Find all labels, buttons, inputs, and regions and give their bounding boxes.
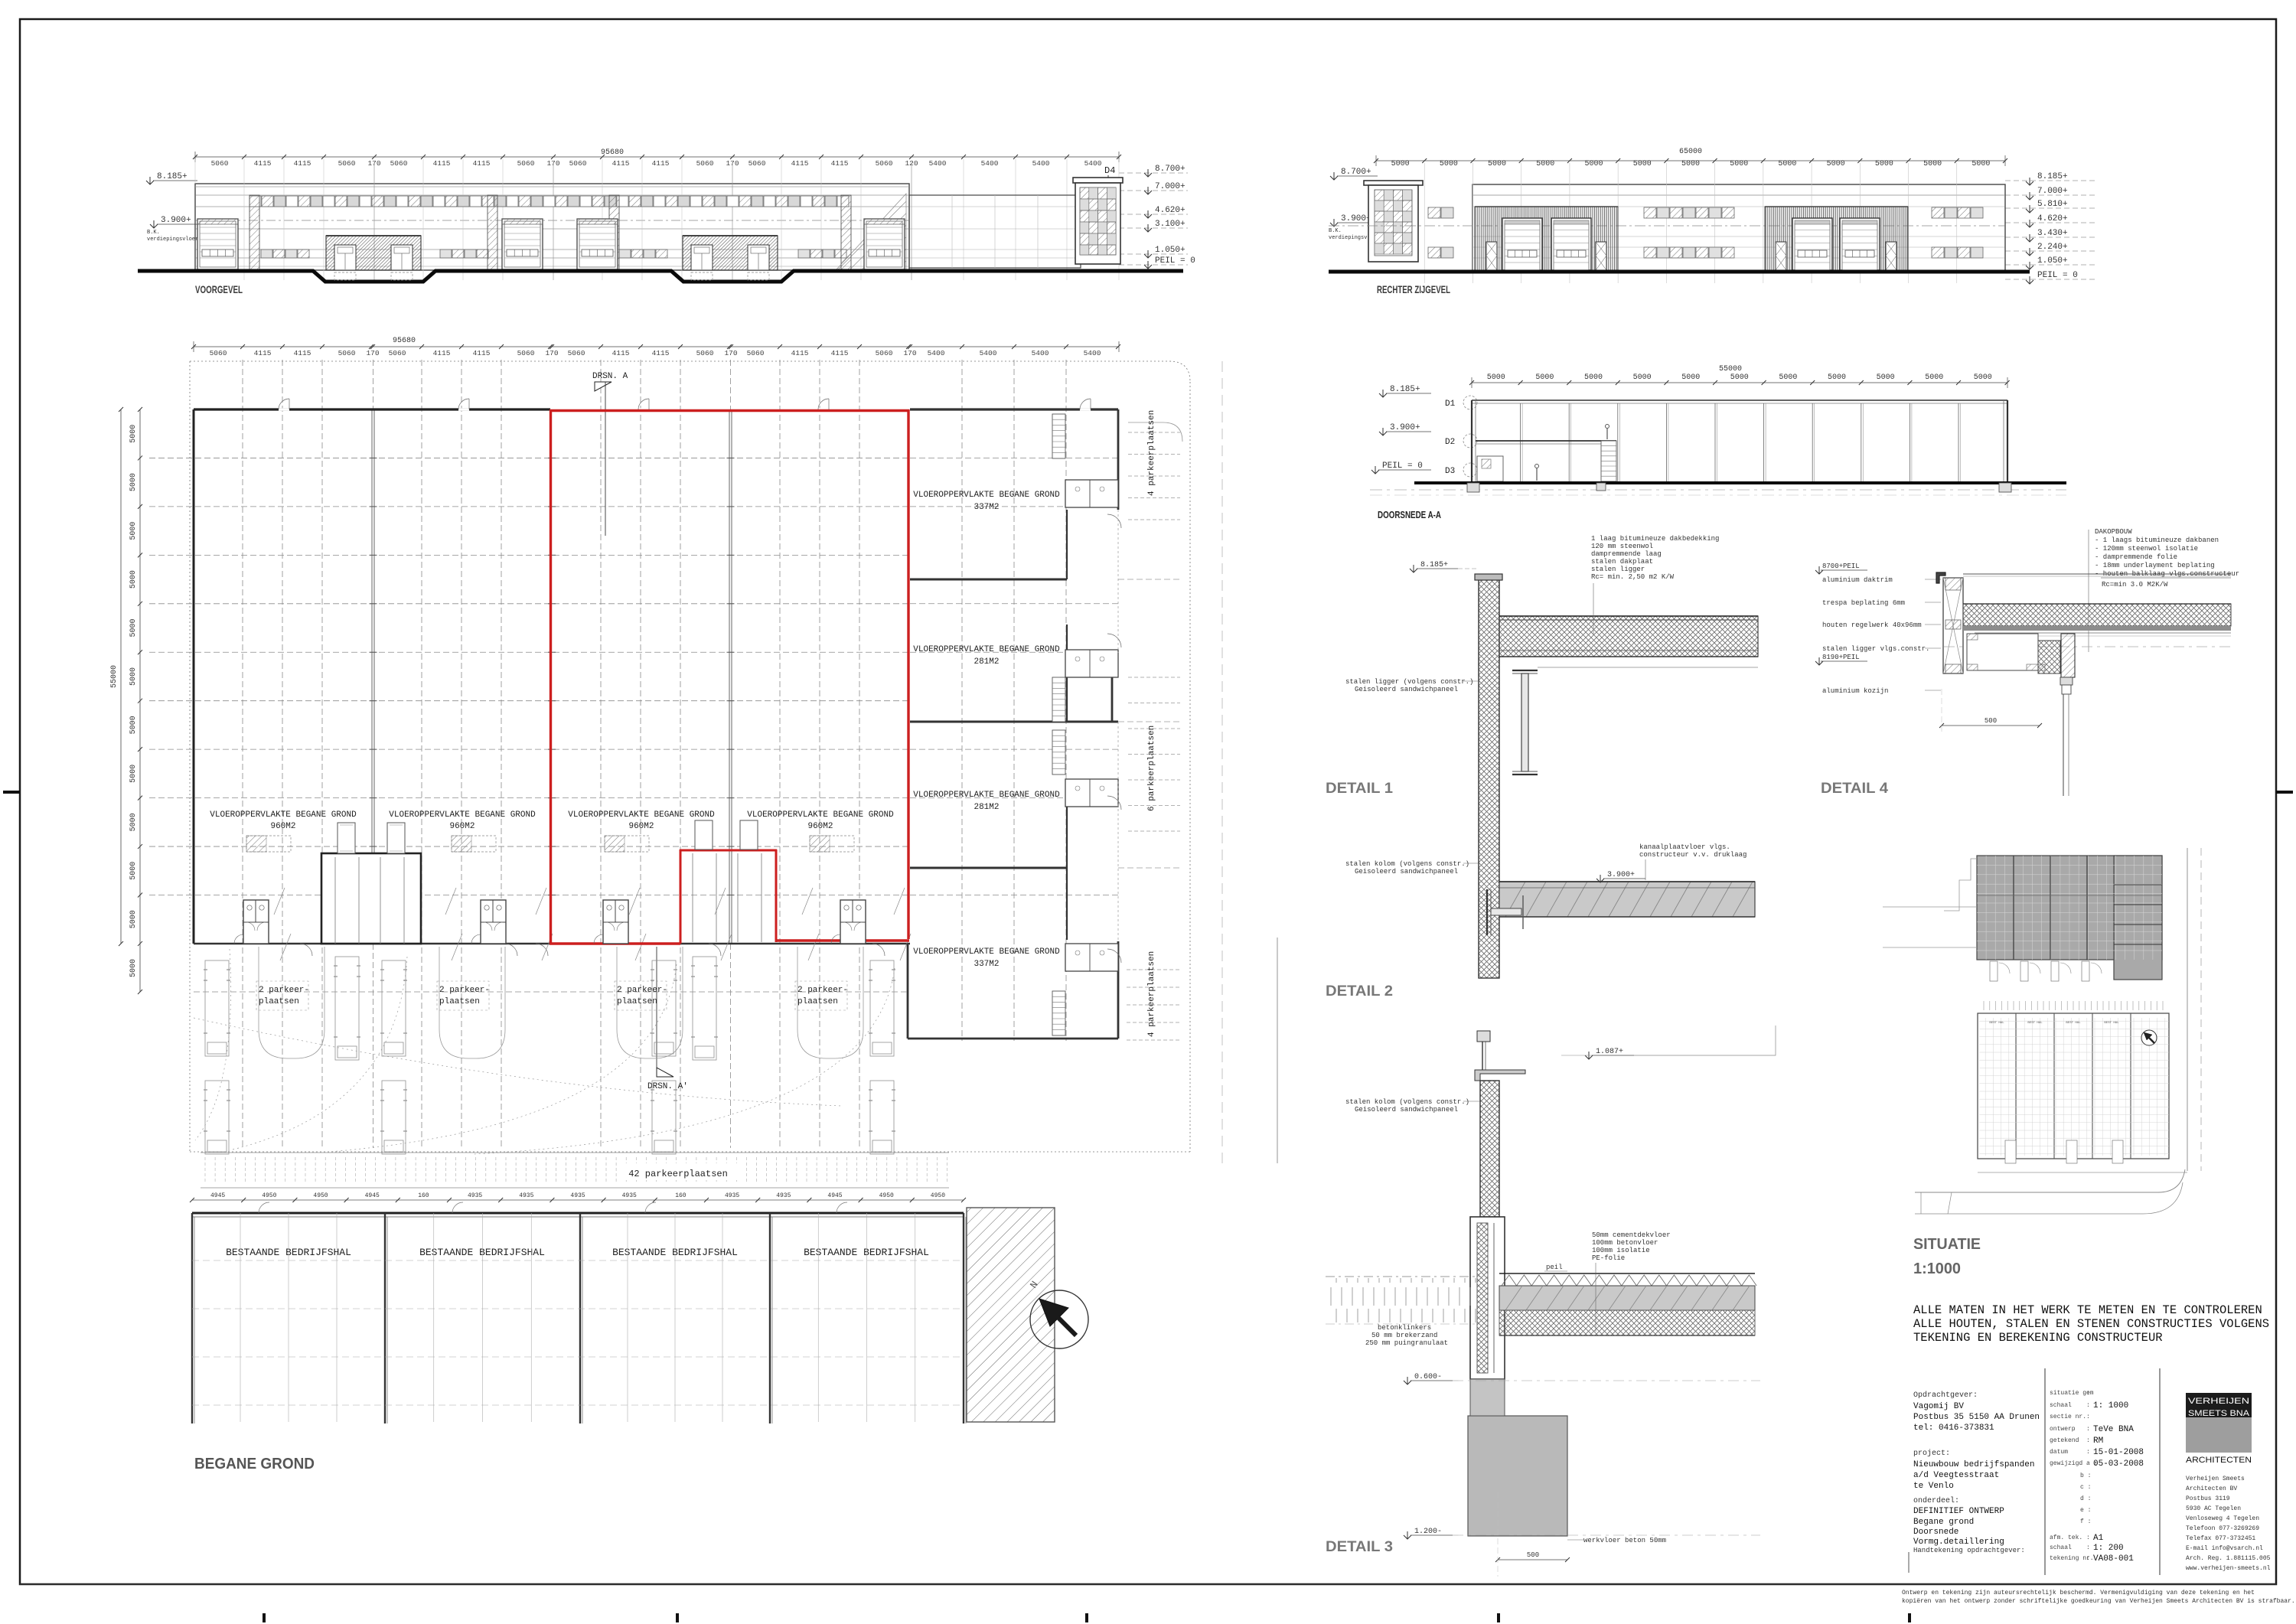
svg-text:SITUATIE: SITUATIE (1913, 1236, 1981, 1253)
svg-text:5000: 5000 (129, 910, 138, 928)
svg-text:DEFINITIEF ONTWERP: DEFINITIEF ONTWERP (1913, 1507, 2004, 1516)
svg-text:5400: 5400 (980, 349, 997, 357)
svg-text:5060: 5060 (748, 159, 766, 168)
svg-text:5000: 5000 (129, 618, 138, 637)
svg-text:c :: c : (2080, 1484, 2091, 1491)
svg-text::: : (2086, 1555, 2090, 1562)
svg-text:170: 170 (545, 349, 558, 357)
svg-text:5000: 5000 (1440, 160, 1458, 168)
svg-text:4 parkeerplaatsen: 4 parkeerplaatsen (1147, 951, 1156, 1037)
svg-text:5000: 5000 (129, 813, 138, 831)
svg-text:8700+PEIL: 8700+PEIL (1822, 563, 1860, 570)
svg-text::: : (2086, 1426, 2090, 1433)
svg-text:1.087+: 1.087+ (1596, 1048, 1623, 1056)
svg-text:5000: 5000 (1971, 160, 1990, 168)
svg-text:afm. tek.: afm. tek. (2050, 1534, 2082, 1541)
svg-text:BEGANE GROND: BEGANE GROND (194, 1456, 315, 1472)
svg-text:onderdeel:: onderdeel: (1913, 1496, 1959, 1505)
svg-text:VLOEROPPERVLAKTE BEGANE GROND: VLOEROPPERVLAKTE BEGANE GROND (389, 810, 536, 820)
svg-text:5000: 5000 (1730, 373, 1749, 382)
svg-text:- 1 laags bitumineuze dakbanen: - 1 laags bitumineuze dakbanen (2095, 536, 2219, 544)
svg-text:281M2: 281M2 (974, 803, 999, 812)
svg-text:5060: 5060 (338, 349, 356, 357)
svg-text:5000: 5000 (1585, 160, 1603, 168)
svg-text:peil: peil (1546, 1264, 1563, 1271)
svg-text:5060: 5060 (747, 349, 765, 357)
svg-text:100mm betonvloer: 100mm betonvloer (1592, 1239, 1658, 1247)
svg-text:DETAIL 2: DETAIL 2 (1326, 983, 1393, 1000)
svg-text:PEIL = 0: PEIL = 0 (2037, 271, 2078, 280)
svg-text:DETAIL 1: DETAIL 1 (1326, 781, 1393, 797)
svg-text:Venloseweg 4 Tegelen: Venloseweg 4 Tegelen (2186, 1515, 2259, 1522)
svg-text:1 laag bitumineuze dakbedekkin: 1 laag bitumineuze dakbedekking (1591, 535, 1719, 543)
svg-text:Geisoleerd sandwichpaneel: Geisoleerd sandwichpaneel (1355, 868, 1458, 876)
svg-text:5400: 5400 (1084, 349, 1101, 357)
svg-text:PEIL = 0: PEIL = 0 (1382, 461, 1423, 471)
svg-text:4115: 4115 (294, 159, 311, 168)
svg-text:stalen dakplaat: stalen dakplaat (1591, 558, 1653, 566)
svg-text:8.185+: 8.185+ (157, 172, 188, 181)
svg-text:Geisoleerd sandwichpaneel: Geisoleerd sandwichpaneel (1355, 686, 1458, 693)
svg-text:ontwerp: ontwerp (2050, 1426, 2076, 1433)
svg-text:5400: 5400 (1032, 349, 1049, 357)
svg-text:5060: 5060 (338, 159, 356, 168)
svg-text:datum: datum (2050, 1449, 2068, 1456)
svg-text:5000: 5000 (129, 862, 138, 880)
svg-text:6 parkeerplaatsen: 6 parkeerplaatsen (1147, 726, 1156, 811)
svg-text:8190+PEIL: 8190+PEIL (1822, 654, 1860, 661)
svg-text:- 18mm underlayment beplating: - 18mm underlayment beplating (2095, 562, 2215, 569)
svg-text:plaatsen: plaatsen (617, 997, 657, 1006)
svg-text:DOORSNEDE A-A: DOORSNEDE A-A (1378, 509, 1441, 520)
svg-text:120 mm steenwol: 120 mm steenwol (1591, 543, 1653, 550)
svg-text:Geisoleerd sandwichpaneel: Geisoleerd sandwichpaneel (1355, 1106, 1458, 1114)
svg-text:960M2: 960M2 (628, 822, 654, 831)
svg-text:sectie nr.: sectie nr. (2050, 1414, 2086, 1420)
svg-text:ALLE HOUTEN, STALEN EN STENEN: ALLE HOUTEN, STALEN EN STENEN CONSTRUCTI… (1913, 1317, 2269, 1331)
svg-text:4945: 4945 (827, 1192, 842, 1199)
svg-text:5930 AC Tegelen: 5930 AC Tegelen (2186, 1505, 2241, 1512)
svg-text:4115: 4115 (831, 159, 849, 168)
svg-text:a/d Veegtesstraat: a/d Veegtesstraat (1913, 1471, 1999, 1480)
svg-text:160: 160 (418, 1192, 429, 1199)
svg-text:50mm cementdekvloer: 50mm cementdekvloer (1592, 1231, 1671, 1239)
svg-text:Architecten BV: Architecten BV (2186, 1485, 2237, 1492)
svg-text:getekend: getekend (2050, 1437, 2079, 1444)
svg-text:DAKOPBOUW: DAKOPBOUW (2095, 528, 2132, 536)
svg-text:5.810+: 5.810+ (2037, 200, 2068, 209)
svg-text:4115: 4115 (652, 349, 670, 357)
svg-text:5000: 5000 (1778, 160, 1796, 168)
svg-text:2 parkeer-: 2 parkeer- (259, 986, 309, 995)
svg-text:4115: 4115 (612, 159, 630, 168)
svg-text:3.900+: 3.900+ (1607, 871, 1635, 879)
svg-text:4115: 4115 (473, 349, 491, 357)
svg-text:4.620+: 4.620+ (1155, 206, 1186, 215)
svg-text:A1: A1 (2093, 1534, 2104, 1543)
svg-text:5060: 5060 (876, 159, 893, 168)
svg-text:4950: 4950 (879, 1192, 894, 1199)
svg-text:5000: 5000 (1536, 160, 1554, 168)
svg-text:4.620+: 4.620+ (2037, 214, 2068, 223)
svg-text:- 120mm steenwol isolatie: - 120mm steenwol isolatie (2095, 545, 2198, 553)
svg-text:Verheijen Smeets: Verheijen Smeets (2186, 1476, 2245, 1482)
svg-text:4115: 4115 (294, 349, 311, 357)
svg-text:Telefoon 077-3269269: Telefoon 077-3269269 (2186, 1525, 2259, 1532)
svg-text:schaal: schaal (2050, 1544, 2072, 1551)
svg-text:VA08-001: VA08-001 (2093, 1554, 2134, 1564)
svg-text:B.K.: B.K. (147, 230, 160, 236)
svg-text:5000: 5000 (1391, 160, 1410, 168)
svg-text:ALLE MATEN IN HET WERK TE METE: ALLE MATEN IN HET WERK TE METEN EN TE CO… (1913, 1303, 2262, 1317)
svg-text:8.700+: 8.700+ (1341, 168, 1371, 177)
svg-text:D1: D1 (1445, 399, 1456, 409)
svg-text:100mm isolatie: 100mm isolatie (1592, 1247, 1650, 1254)
svg-text:BEST HAL: BEST HAL (1989, 1022, 2004, 1025)
svg-text:95680: 95680 (601, 148, 624, 157)
svg-text:TeVe BNA: TeVe BNA (2093, 1425, 2134, 1434)
svg-text:4950: 4950 (262, 1192, 276, 1199)
svg-text:VLOEROPPERVLAKTE BEGANE GROND: VLOEROPPERVLAKTE BEGANE GROND (568, 810, 715, 820)
svg-text:DETAIL 3: DETAIL 3 (1326, 1539, 1393, 1555)
svg-text:Handtekening opdrachtgever:: Handtekening opdrachtgever: (1913, 1547, 2025, 1554)
svg-text:170: 170 (724, 349, 737, 357)
svg-text:5060: 5060 (211, 159, 229, 168)
svg-text:D3: D3 (1445, 467, 1455, 476)
svg-text:verdiepingsvloer: verdiepingsvloer (147, 236, 198, 243)
svg-text:8.185+: 8.185+ (1390, 385, 1420, 394)
svg-text:05-03-2008: 05-03-2008 (2093, 1459, 2144, 1469)
svg-text:5000: 5000 (1877, 373, 1895, 382)
svg-text:tel: 0416-373831: tel: 0416-373831 (1913, 1423, 1994, 1433)
svg-text:VLOEROPPERVLAKTE BEGANE GROND: VLOEROPPERVLAKTE BEGANE GROND (913, 491, 1060, 500)
svg-text:2 parkeer-: 2 parkeer- (439, 986, 490, 995)
svg-text:170: 170 (366, 349, 379, 357)
svg-text:VLOEROPPERVLAKTE BEGANE GROND: VLOEROPPERVLAKTE BEGANE GROND (913, 947, 1060, 957)
svg-text:Telefax 077-3732451: Telefax 077-3732451 (2186, 1535, 2255, 1542)
svg-text:BESTAANDE BEDRIJFSHAL: BESTAANDE BEDRIJFSHAL (804, 1247, 929, 1258)
svg-text:5060: 5060 (569, 159, 587, 168)
svg-text:4115: 4115 (652, 159, 670, 168)
svg-text:4115: 4115 (433, 349, 451, 357)
svg-text:5060: 5060 (876, 349, 893, 357)
svg-text:4945: 4945 (210, 1192, 225, 1199)
svg-text:5000: 5000 (129, 716, 138, 734)
svg-text::: : (2086, 1449, 2090, 1456)
svg-text:5060: 5060 (390, 159, 408, 168)
svg-text:1: 200: 1: 200 (2093, 1544, 2124, 1553)
svg-text:aluminium kozijn: aluminium kozijn (1822, 687, 1888, 695)
svg-text:7.000+: 7.000+ (2037, 187, 2068, 196)
svg-text:5000: 5000 (129, 425, 138, 443)
svg-text:4935: 4935 (519, 1192, 533, 1199)
svg-text:www.verheijen-smeets.nl: www.verheijen-smeets.nl (2186, 1565, 2271, 1572)
svg-text:5400: 5400 (928, 349, 945, 357)
svg-text:Rc=min 3.0 M2K/W: Rc=min 3.0 M2K/W (2102, 581, 2168, 589)
svg-text:Doorsnede: Doorsnede (1913, 1528, 1958, 1537)
svg-text:4935: 4935 (570, 1192, 585, 1199)
svg-text:BESTAANDE BEDRIJFSHAL: BESTAANDE BEDRIJFSHAL (419, 1247, 545, 1258)
svg-text:4115: 4115 (791, 349, 809, 357)
svg-text:stalen kolom (volgens constr.): stalen kolom (volgens constr.) (1345, 860, 1469, 868)
svg-text:- dampremmende folie: - dampremmende folie (2095, 553, 2177, 561)
svg-text:VOORGEVEL: VOORGEVEL (195, 283, 243, 295)
svg-text:5000: 5000 (1681, 373, 1700, 382)
svg-text:BEST HAL: BEST HAL (2066, 1022, 2081, 1025)
svg-text:5000: 5000 (1681, 160, 1700, 168)
svg-text:5060: 5060 (389, 349, 406, 357)
svg-text:1:1000: 1:1000 (1913, 1260, 1961, 1277)
svg-text:5000: 5000 (129, 473, 138, 491)
svg-text:1: 1000: 1: 1000 (2093, 1401, 2128, 1410)
svg-text:55000: 55000 (110, 665, 119, 688)
svg-text:160: 160 (675, 1192, 687, 1199)
svg-text:8.700+: 8.700+ (1155, 165, 1186, 174)
svg-text:5060: 5060 (568, 349, 585, 357)
svg-text:PE-folie: PE-folie (1592, 1254, 1625, 1262)
svg-text:PEIL = 0: PEIL = 0 (1155, 256, 1195, 266)
svg-text:5060: 5060 (696, 159, 714, 168)
svg-text:2 parkeer-: 2 parkeer- (617, 986, 667, 995)
svg-text:5000: 5000 (1633, 373, 1652, 382)
svg-text:15-01-2008: 15-01-2008 (2093, 1448, 2144, 1457)
svg-text:5000: 5000 (129, 667, 138, 686)
svg-text:betonklinkers: betonklinkers (1378, 1324, 1431, 1332)
svg-text:4115: 4115 (433, 159, 451, 168)
svg-text:2.240+: 2.240+ (2037, 243, 2068, 252)
svg-text:3.900+: 3.900+ (1390, 423, 1420, 432)
svg-text:50 mm brekerzand: 50 mm brekerzand (1371, 1332, 1437, 1339)
svg-text:4115: 4115 (254, 349, 272, 357)
svg-text:5400: 5400 (981, 159, 999, 168)
svg-text:170: 170 (903, 349, 916, 357)
svg-text:gewijzigd: gewijzigd (2050, 1460, 2082, 1467)
svg-text::: : (2086, 1437, 2090, 1444)
svg-text:5000: 5000 (1779, 373, 1797, 382)
svg-text::: : (2086, 1544, 2090, 1551)
svg-text:plaatsen: plaatsen (439, 997, 480, 1006)
svg-text:d :: d : (2080, 1495, 2091, 1502)
svg-text:4935: 4935 (622, 1192, 637, 1199)
svg-text:8.185+: 8.185+ (2037, 172, 2068, 181)
svg-text:3.100+: 3.100+ (1155, 220, 1186, 229)
svg-text:plaatsen: plaatsen (259, 997, 299, 1006)
svg-text:337M2: 337M2 (974, 503, 999, 512)
svg-text:DETAIL 4: DETAIL 4 (1821, 781, 1888, 797)
svg-text:aluminium daktrim: aluminium daktrim (1822, 576, 1893, 584)
svg-text:VLOEROPPERVLAKTE BEGANE GROND: VLOEROPPERVLAKTE BEGANE GROND (747, 810, 894, 820)
svg-text:4115: 4115 (473, 159, 491, 168)
svg-text:schaal: schaal (2050, 1402, 2072, 1409)
svg-text:5000: 5000 (1974, 373, 1992, 382)
svg-text:f :: f : (2080, 1518, 2091, 1525)
svg-text:D4: D4 (1104, 165, 1115, 176)
svg-text:5000: 5000 (1925, 373, 1943, 382)
svg-text:5000: 5000 (1828, 373, 1846, 382)
svg-text:VERHEIJEN: VERHEIJEN (2188, 1397, 2249, 1406)
svg-text:Rc= min. 2,50 m2 K/W: Rc= min. 2,50 m2 K/W (1591, 573, 1675, 581)
svg-text:project:: project: (1913, 1449, 1950, 1458)
svg-text:3.430+: 3.430+ (2037, 229, 2068, 238)
svg-text:5000: 5000 (1584, 373, 1603, 382)
svg-text:E-mail info@vsarch.nl: E-mail info@vsarch.nl (2186, 1545, 2263, 1552)
svg-text:4950: 4950 (313, 1192, 328, 1199)
svg-text:Postbus 3119: Postbus 3119 (2186, 1495, 2230, 1502)
svg-text:337M2: 337M2 (974, 960, 999, 969)
svg-text:4115: 4115 (612, 349, 630, 357)
svg-text:dampremmende laag: dampremmende laag (1591, 550, 1662, 558)
svg-text:55000: 55000 (1719, 365, 1742, 373)
svg-text:5000: 5000 (1875, 160, 1893, 168)
svg-text:stalen kolom (volgens constr.): stalen kolom (volgens constr.) (1345, 1098, 1469, 1106)
svg-text:4950: 4950 (931, 1192, 945, 1199)
svg-text:Begane grond: Begane grond (1913, 1518, 1974, 1527)
svg-text:5000: 5000 (129, 959, 138, 977)
svg-text:5000: 5000 (1487, 373, 1505, 382)
svg-text:4935: 4935 (776, 1192, 791, 1199)
svg-text:3.900+: 3.900+ (161, 216, 191, 225)
svg-text:4935: 4935 (468, 1192, 482, 1199)
svg-text::: : (2086, 1414, 2090, 1420)
svg-text:5060: 5060 (517, 349, 535, 357)
svg-text:kopiëren van het ontwerp zonde: kopiëren van het ontwerp zonder schrifte… (1902, 1598, 2295, 1605)
svg-text:281M2: 281M2 (974, 657, 999, 667)
svg-text:4935: 4935 (725, 1192, 739, 1199)
svg-text::: : (2086, 1390, 2090, 1397)
svg-text:5000: 5000 (129, 522, 138, 540)
svg-text:7.000+: 7.000+ (1155, 182, 1186, 191)
svg-text:5000: 5000 (1827, 160, 1845, 168)
svg-text:trespa beplating 6mm: trespa beplating 6mm (1822, 599, 1905, 607)
svg-text:BEST HAL: BEST HAL (2027, 1022, 2043, 1025)
svg-text:3.900+: 3.900+ (1341, 214, 1371, 223)
svg-text:95680: 95680 (393, 337, 416, 345)
svg-text:1.200-: 1.200- (1414, 1528, 1442, 1536)
svg-text:8.185+: 8.185+ (1420, 561, 1448, 569)
svg-text:B.K.: B.K. (1329, 228, 1342, 234)
svg-text:4 parkeerplaatsen: 4 parkeerplaatsen (1147, 410, 1156, 496)
svg-text:500: 500 (1985, 717, 1997, 725)
svg-text:42 parkeerplaatsen: 42 parkeerplaatsen (628, 1169, 728, 1179)
svg-text:RECHTER ZIJGEVEL: RECHTER ZIJGEVEL (1377, 283, 1450, 295)
svg-text:Nieuwbouw bedrijfspanden: Nieuwbouw bedrijfspanden (1913, 1460, 2034, 1469)
svg-text:2 parkeer-: 2 parkeer- (797, 986, 848, 995)
svg-text::: : (2086, 1402, 2090, 1409)
svg-text:5060: 5060 (517, 159, 535, 168)
svg-text:stalen ligger (volgens constr.: stalen ligger (volgens constr.) (1345, 678, 1473, 686)
svg-text:5400: 5400 (1032, 159, 1050, 168)
svg-text:Vormg.detaillering: Vormg.detaillering (1913, 1538, 2004, 1547)
svg-text:5000: 5000 (1535, 373, 1554, 382)
svg-text:5000: 5000 (1923, 160, 1942, 168)
svg-text:Opdrachtgever:: Opdrachtgever: (1913, 1391, 1978, 1400)
svg-text:e :: e : (2080, 1507, 2091, 1514)
svg-text:4115: 4115 (831, 349, 849, 357)
svg-text:960M2: 960M2 (270, 822, 295, 831)
svg-text:Ontwerp en tekening zijn auteu: Ontwerp en tekening zijn auteursrechteli… (1902, 1590, 2255, 1596)
svg-text:houten regelwerk 40x96mm: houten regelwerk 40x96mm (1822, 621, 1922, 629)
svg-text:65000: 65000 (1679, 148, 1702, 156)
svg-text:250 mm puingranulaat: 250 mm puingranulaat (1365, 1339, 1448, 1347)
svg-text:5000: 5000 (129, 570, 138, 589)
svg-text:VLOEROPPERVLAKTE BEGANE GROND: VLOEROPPERVLAKTE BEGANE GROND (210, 810, 357, 820)
svg-text:5000: 5000 (1633, 160, 1652, 168)
svg-text:5000: 5000 (1488, 160, 1506, 168)
svg-text:4115: 4115 (791, 159, 809, 168)
svg-text:1.050+: 1.050+ (1155, 246, 1186, 255)
svg-text:VLOEROPPERVLAKTE BEGANE GROND: VLOEROPPERVLAKTE BEGANE GROND (913, 645, 1060, 654)
svg-text:5000: 5000 (1730, 160, 1748, 168)
svg-text:960M2: 960M2 (807, 822, 833, 831)
svg-text:4945: 4945 (365, 1192, 380, 1199)
svg-text:5400: 5400 (929, 159, 947, 168)
svg-text:Vagomij BV: Vagomij BV (1913, 1402, 1964, 1411)
svg-text:BEST HAL: BEST HAL (2104, 1022, 2119, 1025)
svg-text:werkvloer beton 50mm: werkvloer beton 50mm (1583, 1537, 1666, 1544)
svg-text:kanaalplaatvloer vlgs.: kanaalplaatvloer vlgs. (1639, 843, 1730, 851)
svg-text:4115: 4115 (254, 159, 272, 168)
svg-text:b :: b : (2080, 1472, 2091, 1479)
svg-text:RM: RM (2093, 1436, 2103, 1446)
svg-text:te Venlo: te Venlo (1913, 1482, 1954, 1491)
svg-text:500: 500 (1527, 1551, 1539, 1559)
svg-text:5060: 5060 (696, 349, 714, 357)
svg-text:ARCHITECTEN: ARCHITECTEN (2186, 1456, 2252, 1465)
svg-text:1.050+: 1.050+ (2037, 256, 2068, 266)
svg-text::: : (2086, 1534, 2090, 1541)
svg-text:SMEETS BNA: SMEETS BNA (2188, 1409, 2250, 1418)
svg-text:constructeur v.v. druklaag: constructeur v.v. druklaag (1639, 851, 1746, 859)
svg-text:D2: D2 (1445, 438, 1455, 447)
svg-text:Postbus 35 5150 AA Drunen: Postbus 35 5150 AA Drunen (1913, 1413, 2040, 1422)
svg-text:960M2: 960M2 (449, 822, 475, 831)
svg-text:5400: 5400 (1084, 159, 1102, 168)
svg-text:Arch. Reg. 1.881115.005: Arch. Reg. 1.881115.005 (2186, 1555, 2271, 1562)
svg-text:TEKENING EN BEREKENING CONSTRU: TEKENING EN BEREKENING CONSTRUCTEUR (1913, 1331, 2163, 1345)
svg-text:stalen ligger vlgs.constr.: stalen ligger vlgs.constr. (1822, 645, 1929, 653)
svg-text:plaatsen: plaatsen (797, 997, 838, 1006)
svg-text:0.600-: 0.600- (1414, 1373, 1442, 1381)
svg-text:DRSN. A: DRSN. A (592, 372, 628, 381)
svg-text:5060: 5060 (210, 349, 227, 357)
svg-text:5000: 5000 (129, 765, 138, 783)
svg-text:stalen ligger: stalen ligger (1591, 566, 1645, 573)
svg-text:VLOEROPPERVLAKTE BEGANE GROND: VLOEROPPERVLAKTE BEGANE GROND (913, 791, 1060, 800)
